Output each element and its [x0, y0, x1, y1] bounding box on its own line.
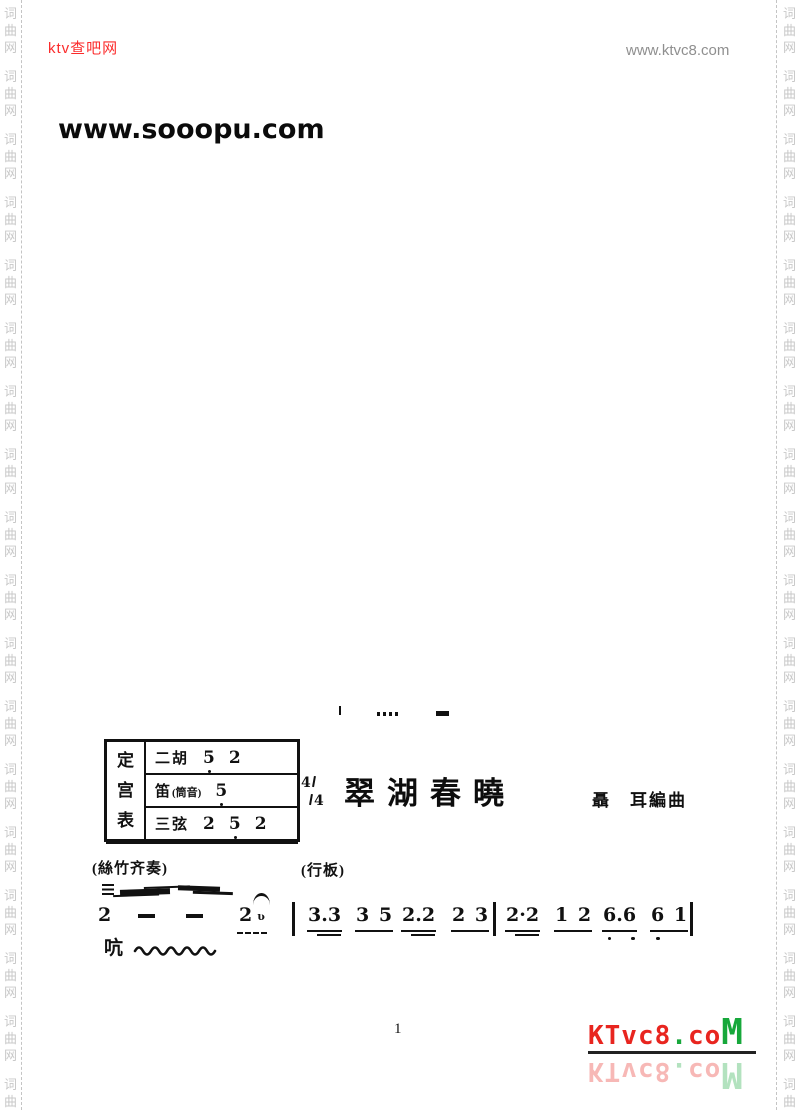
duration-dash	[186, 914, 203, 918]
margin-watermark-group: 词曲网	[781, 698, 798, 749]
margin-watermark-char: 词	[781, 446, 798, 463]
margin-watermark-group: 词曲网	[781, 68, 798, 119]
note-group: 6 1	[650, 903, 688, 932]
note: 2	[98, 903, 111, 927]
low-octave-dot	[220, 803, 223, 806]
margin-watermark-group: 词曲网	[781, 5, 798, 56]
second-beam-underline	[411, 934, 435, 936]
instrument-name: 笛(筒音)	[155, 780, 201, 801]
tuning-pitch-number: 5	[203, 748, 215, 768]
margin-watermark-char: 网	[781, 669, 798, 686]
margin-watermark-char: 网	[781, 39, 798, 56]
margin-watermark-char: 词	[781, 194, 798, 211]
margin-watermark-char: 曲	[2, 463, 19, 480]
margin-watermark-char: 词	[2, 1076, 19, 1093]
margin-watermark-char: 曲	[2, 778, 19, 795]
margin-watermark-char: 词	[2, 131, 19, 148]
margin-watermark-group: 词曲网	[2, 572, 19, 623]
margin-watermark-char: 曲	[781, 85, 798, 102]
barline	[292, 902, 295, 936]
note-group: 6.6	[602, 903, 637, 932]
duration-dash	[138, 914, 155, 918]
tuning-table-side-char: 定	[117, 752, 134, 769]
logo-segment: co	[688, 1021, 721, 1051]
margin-watermark-char: 曲	[781, 1093, 798, 1110]
margin-watermark-char: 网	[2, 417, 19, 434]
margin-watermark-group: 词曲网	[2, 1076, 19, 1110]
margin-watermark-char: 网	[781, 732, 798, 749]
margin-watermark-char: 网	[2, 984, 19, 1001]
margin-watermark-char: 曲	[2, 148, 19, 165]
margin-watermark-char: 曲	[2, 85, 19, 102]
tuning-pitch-number: 2	[203, 814, 215, 834]
margin-watermark-char: 词	[2, 509, 19, 526]
margin-watermark-char: 曲	[2, 274, 19, 291]
margin-watermark-group: 词曲网	[2, 698, 19, 749]
logo-segment: M	[721, 1012, 744, 1053]
logo-segment: KTvc8	[588, 1056, 671, 1086]
tuning-pitch-number: 2	[229, 748, 241, 768]
site-url-right: www.ktvc8.com	[626, 42, 729, 59]
margin-watermark-char: 网	[2, 732, 19, 749]
tuning-table-side-char: 表	[117, 812, 134, 829]
tempo-label: (行板)	[301, 859, 345, 880]
instrument-note-qualifier: (筒音)	[172, 787, 201, 799]
page-number: 1	[394, 1021, 402, 1038]
margin-watermark-char: 网	[781, 102, 798, 119]
margin-watermark-char: 词	[781, 950, 798, 967]
margin-watermark-char: 网	[2, 39, 19, 56]
margin-watermark-char: 曲	[781, 211, 798, 228]
note-group: 2 3	[451, 903, 489, 932]
tuning-table-row: 三弦252	[146, 808, 297, 839]
margin-watermark-group: 词曲网	[2, 320, 19, 371]
margin-watermark-char: 曲	[2, 337, 19, 354]
margin-watermark-group: 词曲网	[2, 131, 19, 182]
margin-watermark-char: 曲	[781, 1030, 798, 1047]
time-signature-denominator: 4	[314, 793, 324, 809]
margin-watermark-group: 词曲网	[2, 68, 19, 119]
margin-watermark-char: 网	[781, 165, 798, 182]
margin-watermark-char: 词	[781, 1013, 798, 1030]
margin-watermark-char: 网	[781, 291, 798, 308]
note: 2ʋ	[237, 903, 267, 934]
margin-watermark-group: 词曲网	[2, 257, 19, 308]
margin-watermark-char: 词	[781, 887, 798, 904]
tuning-table-rows: 二胡52笛(筒音)5三弦252	[146, 742, 297, 839]
margin-watermark-char: 曲	[2, 22, 19, 39]
margin-watermark-char: 词	[781, 383, 798, 400]
low-octave-dot	[656, 937, 660, 941]
margin-watermark-char: 网	[781, 543, 798, 560]
margin-watermark-char: 曲	[2, 400, 19, 417]
grace-mark: ʋ	[257, 910, 265, 923]
margin-watermark-char: 词	[2, 383, 19, 400]
margin-watermark-char: 网	[2, 543, 19, 560]
margin-watermark-char: 曲	[781, 400, 798, 417]
ktvc8-logo: KTvc8.coM KTvc8.coM	[588, 1018, 758, 1089]
margin-watermark-char: 曲	[2, 1093, 19, 1110]
margin-watermark-char: 网	[781, 480, 798, 497]
margin-watermark-char: 词	[2, 68, 19, 85]
margin-watermark-char: 曲	[2, 715, 19, 732]
margin-watermark-group: 词曲网	[2, 761, 19, 812]
instrument-name: 二胡	[155, 747, 189, 768]
margin-watermark-char: 网	[2, 354, 19, 371]
tuning-table-row: 笛(筒音)5	[146, 775, 297, 808]
margin-watermark-group: 词曲网	[781, 131, 798, 182]
time-signature-numerator: 4	[301, 775, 311, 791]
margin-watermark-char: 词	[781, 509, 798, 526]
low-octave-dot	[234, 836, 237, 839]
margin-watermark-char: 词	[2, 887, 19, 904]
margin-watermark-char: 网	[2, 669, 19, 686]
margin-watermark-char: 曲	[2, 1030, 19, 1047]
low-octave-dot	[631, 937, 635, 941]
tuning-table-side-label: 定宫表	[107, 742, 146, 839]
margin-watermark-char: 词	[781, 320, 798, 337]
margin-watermark-char: 词	[781, 635, 798, 652]
margin-watermark-group: 词曲网	[781, 824, 798, 875]
logo-segment: M	[721, 1054, 744, 1095]
margin-watermark-char: 曲	[781, 715, 798, 732]
scan-smudge-line	[178, 885, 220, 891]
margin-watermark-char: 词	[781, 1076, 798, 1093]
margin-watermark-char: 曲	[781, 337, 798, 354]
margin-watermark-group: 词曲网	[2, 1013, 19, 1064]
margin-watermark-char: 网	[2, 165, 19, 182]
margin-watermark-char: 网	[781, 354, 798, 371]
margin-watermark-char: 网	[781, 795, 798, 812]
margin-watermark-char: 曲	[2, 589, 19, 606]
margin-watermark-group: 词曲网	[781, 950, 798, 1001]
logo-segment: co	[688, 1056, 721, 1086]
margin-watermark-char: 曲	[781, 967, 798, 984]
scan-smudge-glyph	[102, 884, 114, 897]
lyric-syllable: 吭	[104, 933, 123, 960]
note-group: 3.3	[307, 903, 342, 932]
margin-watermark-group: 词曲网	[2, 383, 19, 434]
margin-watermark-char: 词	[2, 320, 19, 337]
low-octave-dot	[608, 937, 612, 941]
tuning-table-row: 二胡52	[146, 742, 297, 775]
logo-segment: .	[671, 1056, 688, 1086]
margin-watermark-group: 词曲网	[781, 257, 798, 308]
margin-watermark-char: 词	[2, 257, 19, 274]
margin-watermark-group: 词曲网	[2, 446, 19, 497]
ktvc8-logo-text: KTvc8.coM	[588, 1018, 758, 1051]
time-signature-slash	[312, 776, 315, 787]
scan-artifact-dots	[377, 712, 399, 716]
time-signature-slash	[309, 794, 312, 805]
margin-watermark-char: 词	[2, 572, 19, 589]
logo-segment: KTvc8	[588, 1021, 671, 1051]
margin-watermark-char: 词	[2, 635, 19, 652]
barline	[690, 902, 693, 936]
margin-watermark-char: 词	[781, 824, 798, 841]
margin-watermark-char: 曲	[781, 841, 798, 858]
margin-watermark-group: 词曲网	[781, 572, 798, 623]
margin-watermark-group: 词曲网	[781, 1076, 798, 1110]
margin-watermark-char: 网	[781, 858, 798, 875]
margin-watermark-char: 曲	[2, 967, 19, 984]
margin-watermark-char: 曲	[2, 211, 19, 228]
margin-watermark-group: 词曲网	[2, 950, 19, 1001]
song-title: 翠湖春曉	[344, 768, 516, 813]
margin-watermark-char: 网	[781, 1047, 798, 1064]
scan-artifact-tick	[339, 706, 341, 715]
margin-watermark-char: 曲	[2, 841, 19, 858]
margin-watermark-group: 词曲网	[781, 194, 798, 245]
note-group: 2·2	[505, 903, 540, 932]
tuning-pitch-number: 2	[255, 814, 267, 834]
tuning-table-side-char: 宫	[117, 782, 134, 799]
scanned-sheet-music-page: 词曲网词曲网词曲网词曲网词曲网词曲网词曲网词曲网词曲网词曲网词曲网词曲网词曲网词…	[0, 0, 800, 1110]
margin-watermark-char: 曲	[781, 652, 798, 669]
margin-watermark-char: 词	[2, 761, 19, 778]
margin-watermark-char: 词	[2, 950, 19, 967]
margin-watermark-char: 词	[2, 1013, 19, 1030]
margin-watermark-char: 曲	[781, 589, 798, 606]
margin-watermark-char: 词	[781, 257, 798, 274]
margin-watermark-group: 词曲网	[781, 761, 798, 812]
margin-watermark-char: 曲	[781, 148, 798, 165]
second-beam-underline	[317, 934, 341, 936]
tuning-table: 定宫表 二胡52笛(筒音)5三弦252	[104, 739, 300, 842]
margin-watermark-char: 词	[2, 194, 19, 211]
margin-watermark-char: 网	[2, 228, 19, 245]
margin-watermark-char: 词	[781, 68, 798, 85]
margin-watermark-char: 词	[781, 698, 798, 715]
note-group: 2.2	[401, 903, 436, 932]
margin-watermark-char: 网	[2, 291, 19, 308]
margin-watermark-group: 词曲网	[781, 446, 798, 497]
composer-credit: 聶 耳編曲	[592, 786, 687, 811]
margin-watermark-char: 词	[781, 572, 798, 589]
margin-watermark-char: 词	[781, 131, 798, 148]
margin-watermark-char: 网	[2, 480, 19, 497]
tuning-pitch-number: 5	[215, 781, 227, 801]
margin-watermark-group: 词曲网	[2, 194, 19, 245]
margin-watermark-char: 词	[781, 5, 798, 22]
second-beam-underline	[515, 934, 539, 936]
margin-watermark-group: 词曲网	[781, 635, 798, 686]
margin-watermark-group: 词曲网	[781, 383, 798, 434]
margin-watermark-group: 词曲网	[2, 824, 19, 875]
margin-watermark-char: 曲	[781, 463, 798, 480]
margin-watermark-char: 网	[781, 984, 798, 1001]
site-name-left: ktv查吧网	[48, 37, 118, 58]
sooopu-watermark: www.sooopu.com	[58, 114, 325, 145]
tuning-pitch-number: 5	[229, 814, 241, 834]
margin-watermark-char: 网	[2, 858, 19, 875]
margin-watermark-char: 词	[2, 824, 19, 841]
fermata-arc	[253, 893, 270, 905]
note-group: 3 5	[355, 903, 393, 932]
margin-watermark-group: 词曲网	[781, 509, 798, 560]
margin-watermark-char: 网	[781, 417, 798, 434]
margin-watermark-char: 词	[2, 698, 19, 715]
margin-watermark-char: 网	[2, 102, 19, 119]
margin-watermark-group: 词曲网	[781, 1013, 798, 1064]
margin-watermark-char: 网	[2, 1047, 19, 1064]
margin-watermark-char: 网	[2, 795, 19, 812]
time-signature: 4 4	[301, 775, 327, 815]
ensemble-label: (絲竹齐奏)	[92, 857, 168, 878]
scan-artifact-dash	[436, 711, 449, 716]
margin-watermark-char: 曲	[781, 274, 798, 291]
note-group: 1 2	[554, 903, 592, 932]
margin-watermark-char: 曲	[781, 526, 798, 543]
margin-watermark-group: 词曲网	[2, 509, 19, 560]
low-octave-dot	[208, 770, 211, 773]
margin-watermark-char: 词	[781, 761, 798, 778]
margin-watermark-char: 网	[781, 606, 798, 623]
margin-watermark-char: 网	[2, 606, 19, 623]
margin-watermark-char: 曲	[781, 22, 798, 39]
lyric-melisma-wavy-line	[133, 944, 217, 956]
instrument-name: 三弦	[155, 813, 189, 834]
margin-watermark-group: 词曲网	[2, 635, 19, 686]
logo-segment: .	[671, 1021, 688, 1051]
margin-watermark-char: 曲	[781, 778, 798, 795]
margin-watermark-group: 词曲网	[781, 320, 798, 371]
margin-watermark-char: 词	[2, 446, 19, 463]
margin-watermark-char: 网	[781, 228, 798, 245]
margin-watermark-group: 词曲网	[2, 5, 19, 56]
margin-watermark-char: 曲	[2, 652, 19, 669]
scan-smudge-line	[120, 888, 170, 896]
barline	[493, 902, 496, 936]
margin-watermark-char: 曲	[2, 526, 19, 543]
ktvc8-logo-reflection: KTvc8.coM	[588, 1056, 758, 1089]
margin-watermark-char: 词	[2, 5, 19, 22]
